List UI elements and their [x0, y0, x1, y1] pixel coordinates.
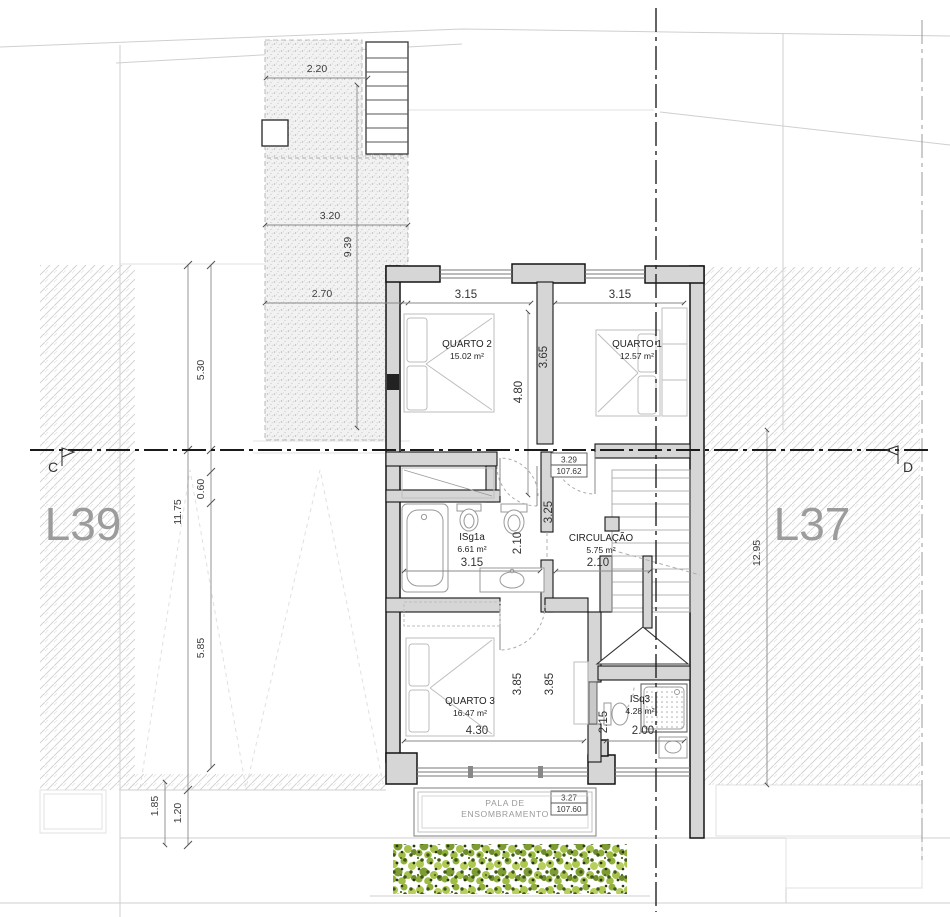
dim-q3-width: 4.30 [466, 725, 488, 737]
bathtub-isg1a [402, 504, 448, 592]
sink-isq3 [659, 737, 687, 758]
room-label-quarto1: QUARTO 1 [612, 339, 662, 350]
dim-q2-width: 3.15 [455, 289, 477, 301]
window-isq3-south [615, 768, 690, 776]
dim-isq3-width: 2.00 [632, 725, 654, 737]
lot-l37: L37 [704, 267, 920, 785]
door-arc-quarto3 [500, 605, 545, 650]
room-label-isq3: ISq3 [630, 694, 651, 705]
room-area-quarto1: 12.57 m² [620, 351, 654, 361]
room-label-isg1a: ISg1a [459, 532, 485, 543]
dim-q2-height: 4.80 [513, 381, 525, 403]
hedge-vegetation [393, 844, 627, 894]
room-area-isq3: 4.28 m² [625, 706, 654, 716]
dim-q3-height2: 3.85 [544, 673, 556, 695]
bed-quarto2 [404, 314, 494, 412]
section-marker-c-label: C [48, 459, 58, 475]
floor-plan-canvas: L39 L37 [0, 0, 950, 917]
level-box-upper: 3.29 107.62 [551, 453, 587, 477]
dim-left-top: 5.30 [195, 360, 207, 381]
dim-hall-len: 3.25 [543, 501, 555, 523]
dim-left-total: 11.75 [172, 499, 184, 525]
canopy-label-line2: ENSOMBRAMENTO [461, 809, 549, 819]
room-area-isg1a: 6.61 m² [457, 544, 486, 554]
dim-q1-height: 3.65 [538, 346, 550, 368]
dim-terrace-width: 2.20 [307, 63, 328, 75]
lot-l37-label: L37 [774, 498, 851, 550]
window-quarto1-north [585, 270, 645, 278]
wardrobe-quarto1 [662, 308, 687, 416]
window-quarto2-north [440, 270, 512, 278]
room-label-quarto2: QUARTO 2 [442, 339, 492, 350]
room-area-circulacao: 5.75 m² [586, 545, 615, 555]
level-upper-rel: 3.29 [561, 456, 577, 465]
stair-guard-wall [643, 556, 652, 628]
dim-q1-width: 3.15 [609, 289, 631, 301]
vanity-isg1a [480, 568, 544, 592]
dim-left-low1: 1.85 [149, 796, 161, 817]
level-canopy-abs: 107.60 [556, 805, 581, 814]
dim-left-low2: 1.20 [172, 803, 184, 824]
dim-isq3-depth: 2.15 [598, 711, 610, 733]
under-stair-triangle [597, 627, 688, 664]
bed-quarto3 [406, 638, 494, 736]
dim-left-offset: 0.60 [195, 479, 207, 500]
room-area-quarto3: 16.47 m² [453, 708, 487, 718]
dim-lot-right: 12.95 [751, 540, 763, 566]
exterior-ladder [366, 42, 408, 154]
dim-terrace-length: 9.39 [342, 237, 354, 258]
stair-newel [605, 517, 619, 531]
section-marker-d-label: D [903, 459, 913, 475]
room-label-circulacao: CIRCULAÇÃO [569, 533, 634, 544]
desk-quarto3 [574, 662, 588, 724]
level-canopy-rel: 3.27 [561, 794, 577, 803]
dim-left-mid: 5.85 [195, 638, 207, 659]
boundary-hatch-band [124, 774, 386, 790]
dim-q3-height: 3.85 [512, 673, 524, 695]
room-area-quarto2: 15.02 m² [450, 351, 484, 361]
canopy-label-line1: PALA DE [485, 798, 524, 808]
dim-bath-width: 3.15 [461, 557, 483, 569]
door-arc-quarto2 [497, 466, 537, 506]
lot-l39-label: L39 [45, 498, 122, 550]
bidet-isg1a [457, 504, 481, 531]
terrace-box [262, 120, 288, 146]
dim-circ-width: 2.10 [587, 557, 609, 569]
level-upper-abs: 107.62 [556, 467, 581, 476]
toilet-isg1a [501, 504, 527, 534]
dim-terrace-upper: 3.20 [320, 210, 341, 222]
dim-bath-depth: 2.10 [512, 532, 524, 554]
room-label-quarto3: QUARTO 3 [445, 696, 495, 707]
window-marker [387, 374, 399, 390]
door-leaf-isq3 [589, 682, 597, 724]
floor-plan-page: L39 L37 [0, 0, 950, 917]
window-quarto3-south [417, 766, 588, 778]
dim-terrace-lower: 2.70 [312, 288, 333, 300]
level-box-canopy: 3.27 107.60 [551, 791, 587, 815]
